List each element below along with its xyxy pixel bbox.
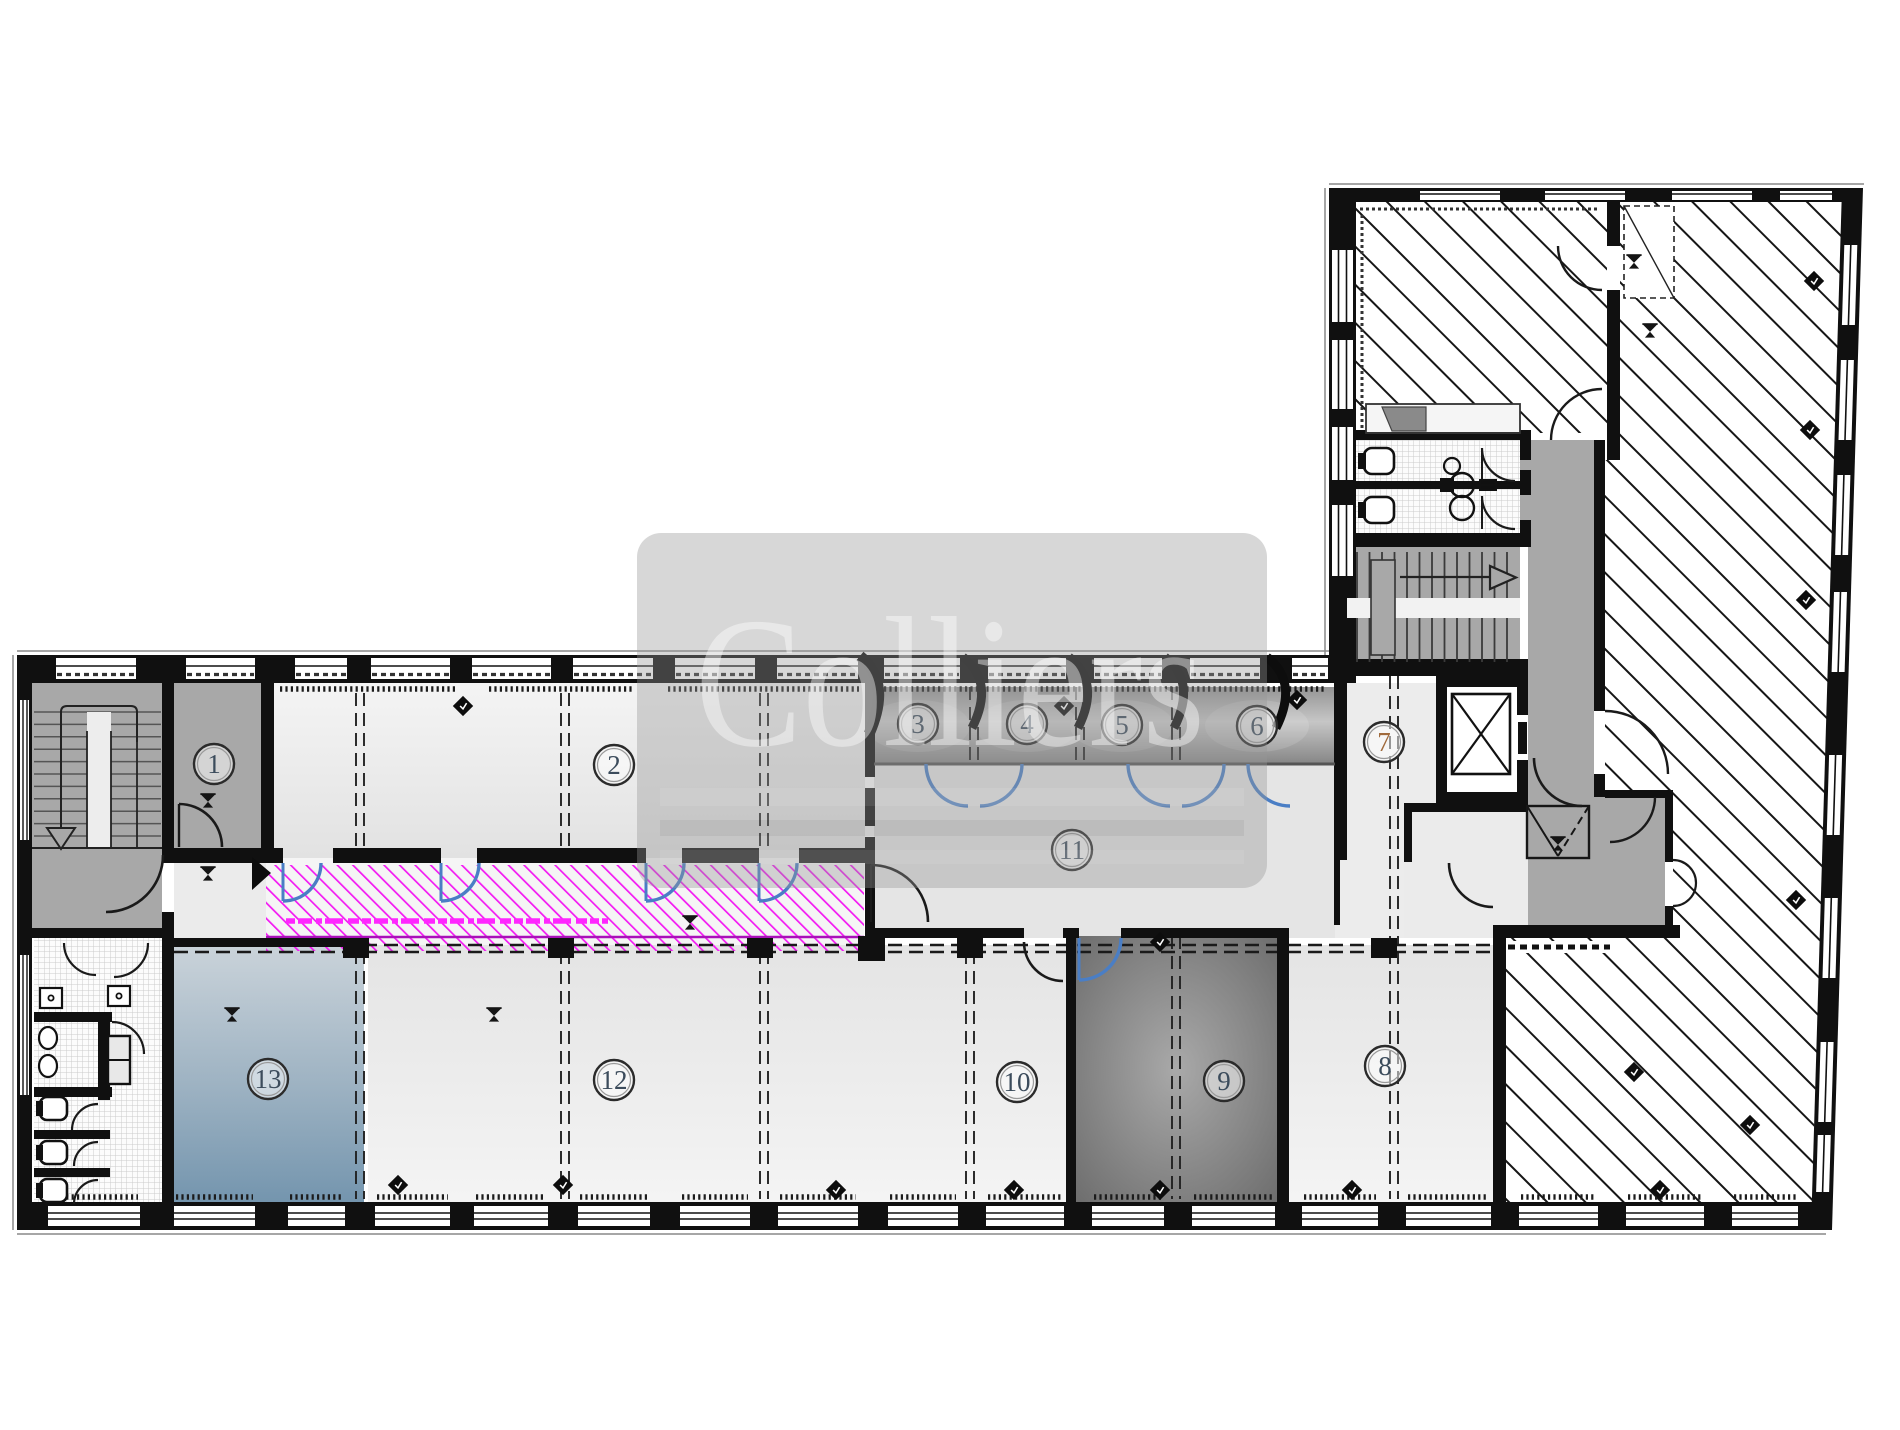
svg-text:7: 7 xyxy=(1377,727,1391,757)
svg-text:9: 9 xyxy=(1217,1066,1231,1096)
svg-text:8: 8 xyxy=(1378,1051,1392,1081)
svg-text:Colliers: Colliers xyxy=(695,580,1205,786)
svg-text:12: 12 xyxy=(601,1065,628,1095)
svg-text:2: 2 xyxy=(607,750,621,780)
svg-text:10: 10 xyxy=(1004,1067,1031,1097)
svg-text:1: 1 xyxy=(207,749,221,779)
svg-text:13: 13 xyxy=(255,1064,282,1094)
